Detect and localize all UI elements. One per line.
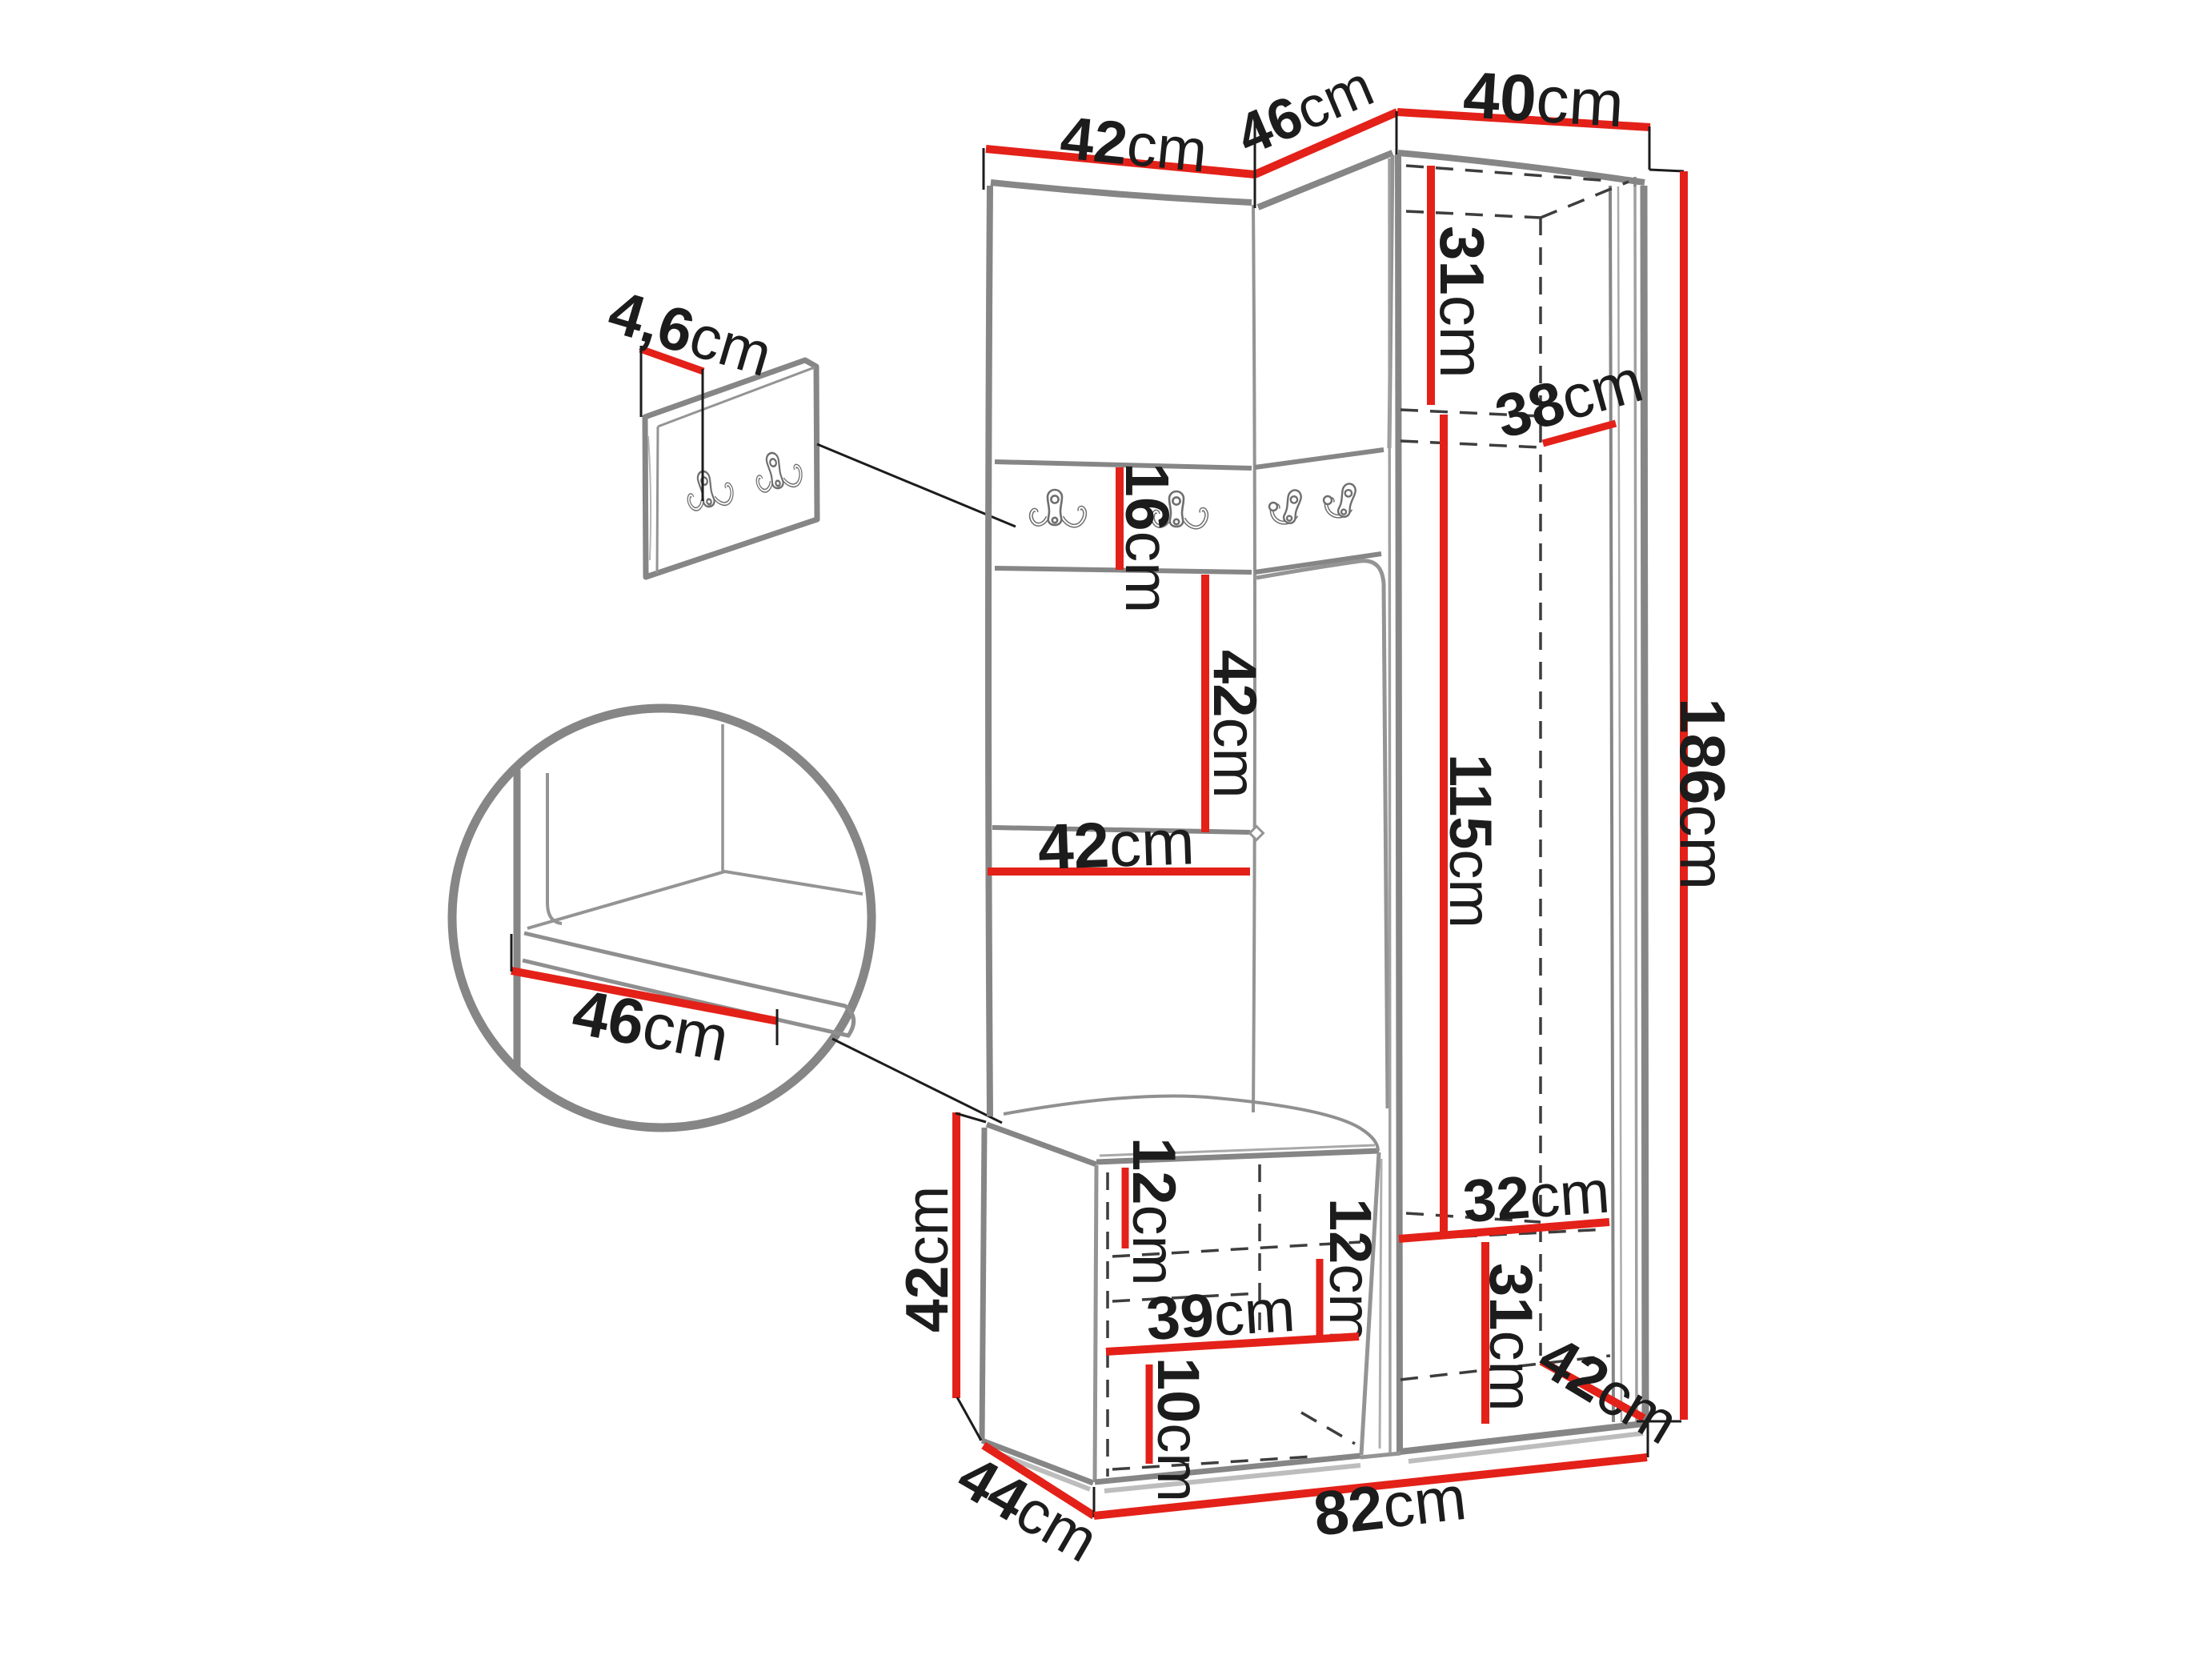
- svg-text:12cm: 12cm: [1120, 1137, 1188, 1286]
- svg-text:42cm: 42cm: [1057, 103, 1210, 184]
- svg-text:39cm: 39cm: [1144, 1276, 1297, 1353]
- svg-text:31cm: 31cm: [1477, 1263, 1545, 1412]
- svg-text:115cm: 115cm: [1437, 754, 1504, 928]
- svg-text:12cm: 12cm: [1317, 1198, 1384, 1343]
- svg-text:31cm: 31cm: [1427, 226, 1497, 379]
- svg-text:42cm: 42cm: [1200, 650, 1268, 799]
- svg-text:40cm: 40cm: [1461, 58, 1626, 141]
- svg-text:10cm: 10cm: [1145, 1357, 1212, 1502]
- svg-text:32cm: 32cm: [1461, 1157, 1612, 1235]
- svg-text:186cm: 186cm: [1667, 698, 1738, 890]
- svg-text:42cm: 42cm: [893, 1186, 960, 1332]
- svg-text:42cm: 42cm: [1036, 806, 1196, 883]
- svg-text:16cm: 16cm: [1112, 463, 1181, 613]
